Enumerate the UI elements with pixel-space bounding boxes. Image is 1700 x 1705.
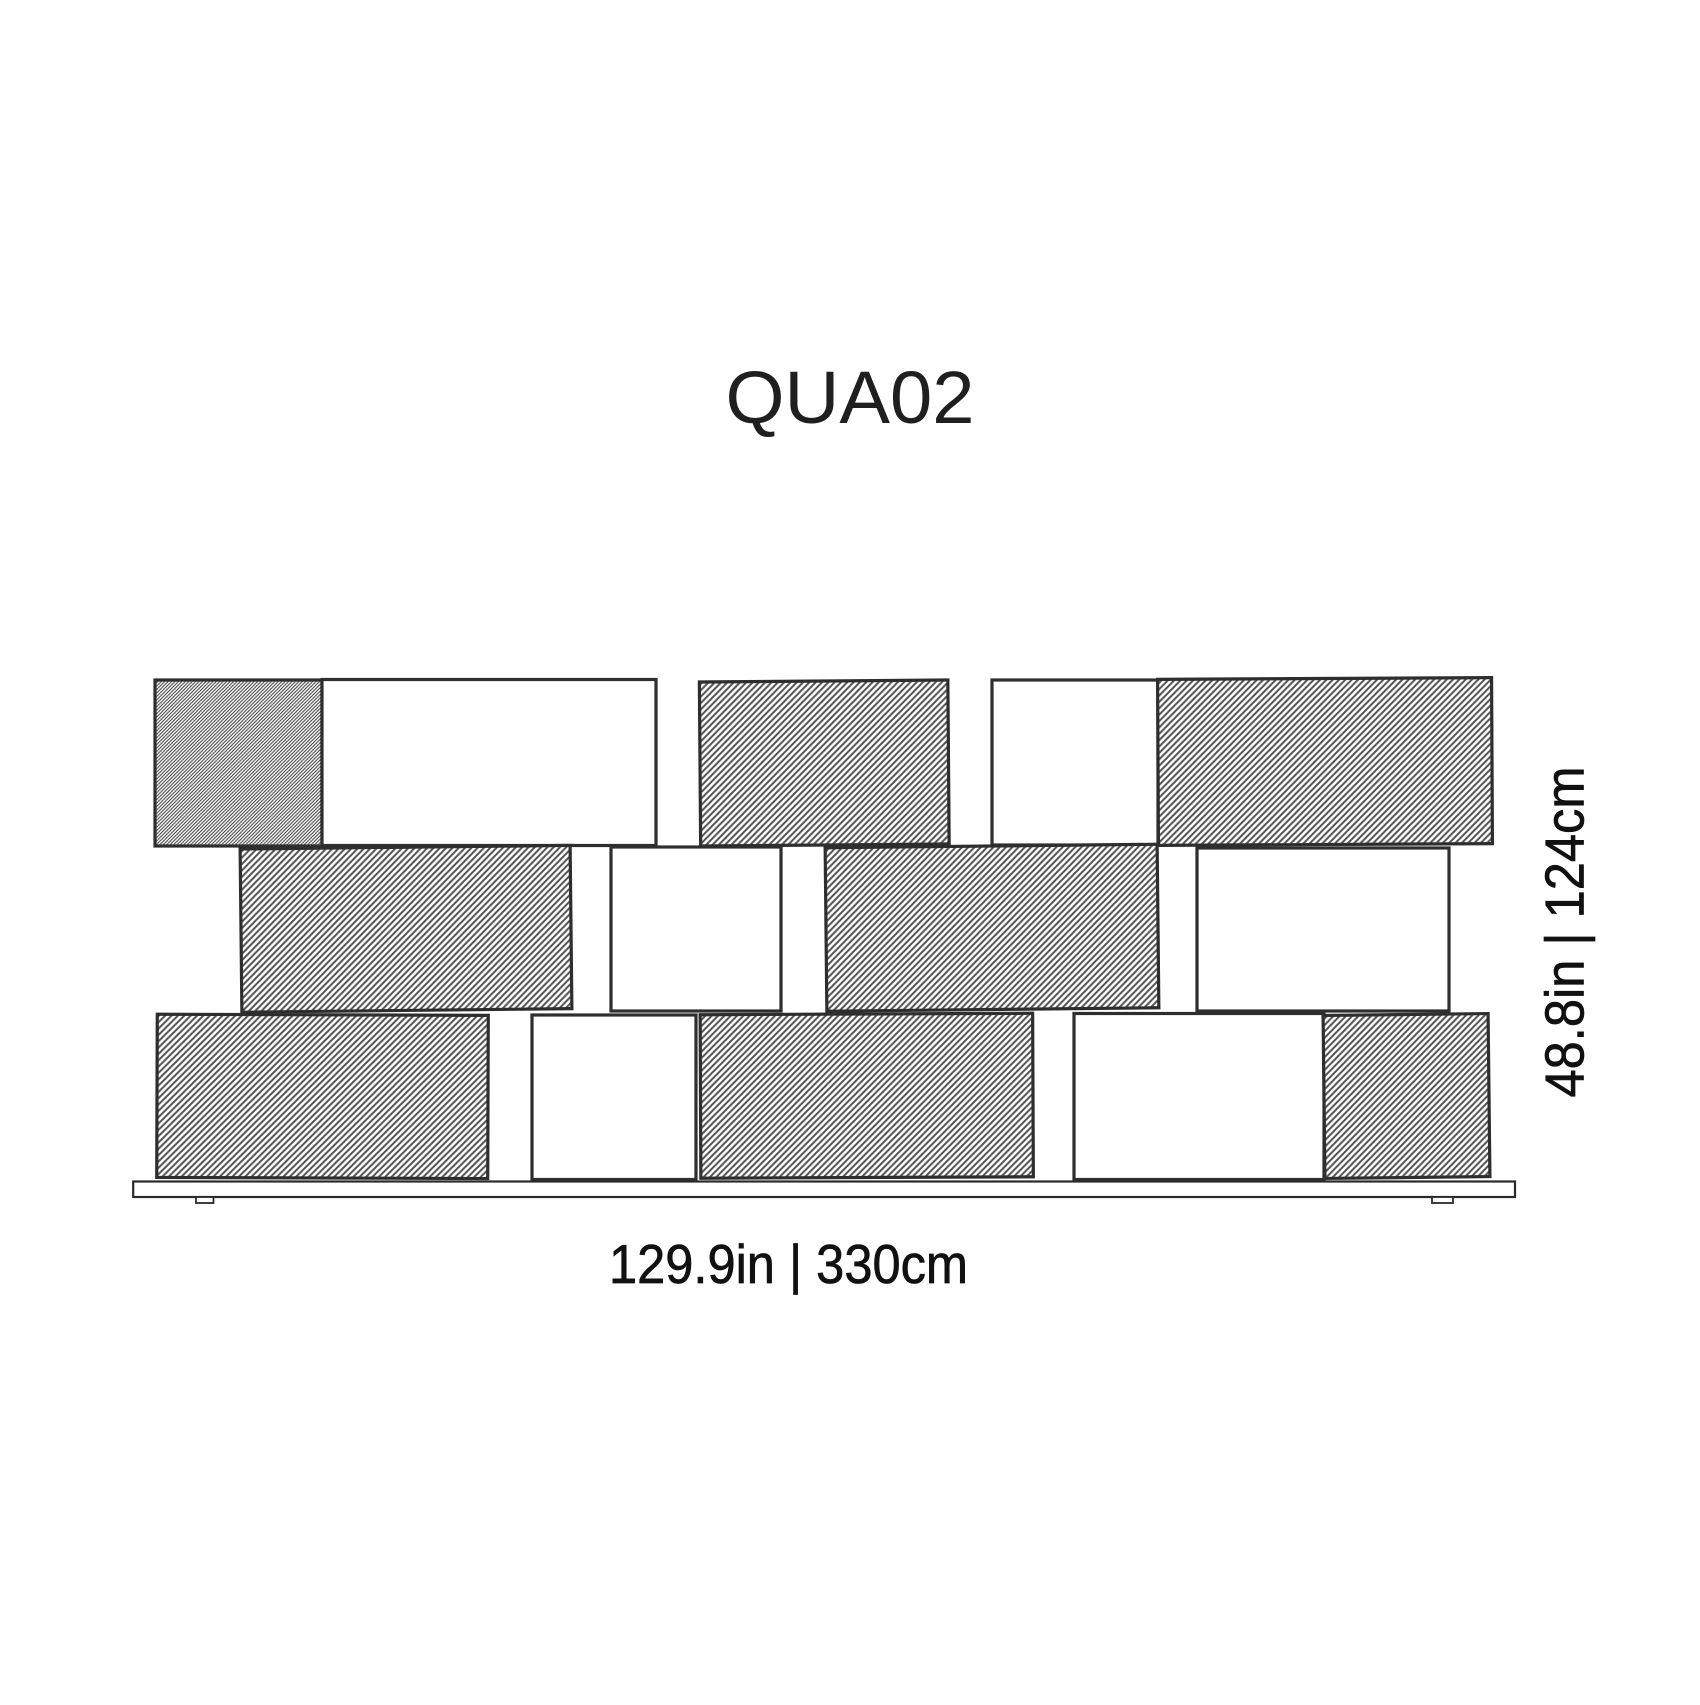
svg-text:129.9in | 330cm: 129.9in | 330cm (609, 1233, 968, 1295)
svg-text:48.8in | 124cm: 48.8in | 124cm (1534, 767, 1596, 1098)
svg-text:QUA02: QUA02 (726, 356, 975, 439)
